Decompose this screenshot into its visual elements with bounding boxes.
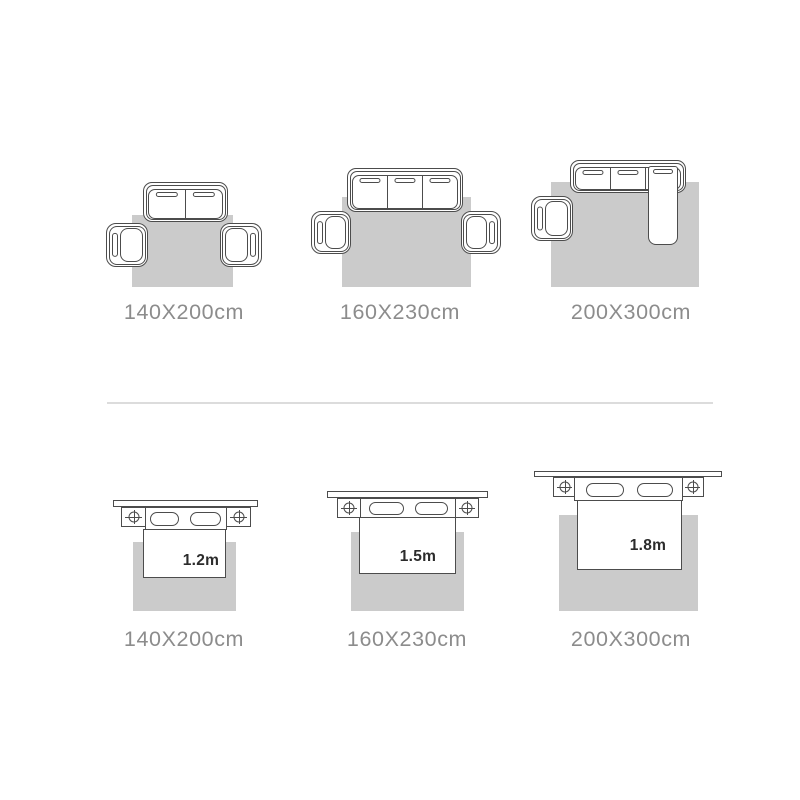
- nightstand-right: [455, 498, 479, 518]
- cushion-slot: [429, 178, 450, 183]
- armchair-back-cushion: [537, 206, 543, 231]
- sofa-diagram-200x300: 200X300cm: [525, 155, 740, 340]
- rug-size-guide: 140X200cm 160X230cm: [0, 0, 800, 800]
- chaise-lounge: [648, 166, 678, 245]
- armchair-seat: [466, 216, 487, 249]
- armchair-seat: [325, 216, 346, 249]
- bed-headboard: [327, 491, 488, 498]
- cushion-slot: [359, 178, 380, 183]
- nightstand-left: [121, 507, 146, 527]
- sofa-cushion: [388, 176, 423, 208]
- size-label: 200X300cm: [571, 300, 691, 325]
- sofa-cushion: [423, 176, 457, 208]
- sofa-diagram-140x200: 140X200cm: [100, 160, 270, 340]
- armchair-back-cushion: [317, 221, 323, 245]
- armchair-right: [220, 223, 262, 267]
- bed: 1.5m: [359, 517, 456, 574]
- sofa-cushion: [353, 176, 388, 208]
- bed: 1.2m: [143, 529, 226, 578]
- pillow: [637, 483, 673, 497]
- lamp-icon: [687, 482, 698, 493]
- bed-diagram-140x200: 1.2m 140X200cm: [105, 490, 265, 665]
- bed-head-frame: [360, 498, 456, 518]
- cushion-slot: [156, 192, 178, 197]
- armchair-back-cushion: [489, 221, 495, 245]
- sofa-cushion: [149, 190, 186, 218]
- armchair-left: [311, 211, 351, 254]
- armchair-left: [531, 196, 573, 241]
- sofa-cushions: [352, 175, 458, 209]
- divider-line: [107, 402, 713, 404]
- bed-head-frame: [574, 477, 683, 501]
- bed: 1.8m: [577, 500, 682, 570]
- lamp-icon: [344, 503, 355, 514]
- sofa: [143, 182, 228, 222]
- cushion-slot: [617, 170, 638, 175]
- bed-diagram-200x300: 1.8m 200X300cm: [527, 464, 737, 664]
- lamp-icon: [128, 512, 139, 523]
- sofa-cushion: [186, 190, 222, 218]
- cushion-slot: [193, 192, 215, 197]
- armchair-seat: [225, 228, 248, 262]
- armchair-seat: [120, 228, 143, 262]
- size-label: 160X230cm: [347, 627, 467, 652]
- sofa-cushion: [576, 168, 611, 189]
- bed-diagram-160x230: 1.5m 160X230cm: [320, 483, 500, 665]
- size-label: 200X300cm: [571, 627, 691, 652]
- lamp-icon: [462, 503, 473, 514]
- cushion-slot: [653, 169, 673, 174]
- armchair-left: [106, 223, 148, 267]
- nightstand-left: [553, 477, 576, 497]
- sofa-cushion: [611, 168, 646, 189]
- bed-width-label: 1.2m: [183, 552, 220, 570]
- pillow: [586, 483, 624, 497]
- bed-headboard: [113, 500, 258, 507]
- lamp-icon: [559, 482, 570, 493]
- size-label: 160X230cm: [340, 300, 460, 325]
- bed-head-frame: [145, 507, 227, 530]
- nightstand-right: [681, 477, 704, 497]
- pillow: [415, 502, 448, 515]
- armchair-seat: [545, 201, 568, 236]
- pillow: [369, 502, 404, 515]
- pillow: [150, 512, 179, 526]
- sofa-cushions: [148, 189, 223, 219]
- cushion-slot: [582, 170, 603, 175]
- pillow: [190, 512, 221, 526]
- size-label: 140X200cm: [124, 627, 244, 652]
- bed-width-label: 1.5m: [400, 548, 437, 566]
- sofa-diagram-160x230: 160X230cm: [305, 160, 505, 340]
- bed-width-label: 1.8m: [630, 537, 667, 555]
- armchair-back-cushion: [250, 233, 256, 257]
- size-label: 140X200cm: [124, 300, 244, 325]
- lamp-icon: [233, 512, 244, 523]
- armchair-back-cushion: [112, 233, 118, 257]
- sofa: [347, 168, 463, 212]
- nightstand-left: [337, 498, 361, 518]
- nightstand-right: [226, 507, 251, 527]
- armchair-right: [461, 211, 501, 254]
- cushion-slot: [394, 178, 415, 183]
